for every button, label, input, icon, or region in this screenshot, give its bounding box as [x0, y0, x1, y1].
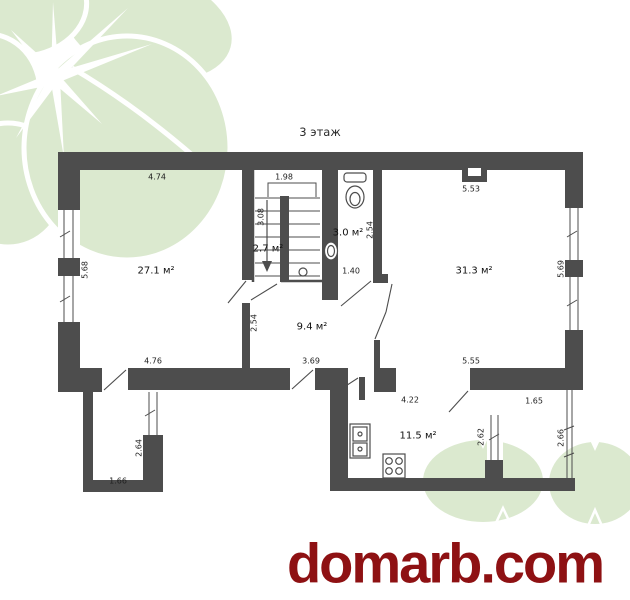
dim-3-08: 3.08 [257, 208, 266, 226]
dim-1-40: 1.40 [342, 267, 360, 276]
wall-wc-stub [373, 274, 388, 283]
dim-2-62: 2.62 [477, 428, 486, 446]
window-right-2 [565, 277, 583, 330]
dim-4-22: 4.22 [401, 396, 419, 405]
room-labels: 27.1 м² 2.7 м² 3.0 м² 31.3 м² 9.4 м² 11.… [138, 228, 493, 442]
stair-newel [299, 268, 307, 276]
kitchen-sink-icon [350, 424, 370, 458]
dim-2-54-wc: 2.54 [366, 221, 375, 239]
door-stairwell [251, 284, 277, 300]
door-living-room [228, 281, 246, 303]
dim-1-66: 1.66 [109, 477, 127, 486]
stove-icon [383, 454, 405, 478]
stair-divider [280, 196, 289, 282]
room-label-bathroom: 3.0 м² [333, 228, 364, 239]
door-bathroom [341, 281, 371, 306]
leaf-decoration-top-left [0, 0, 247, 260]
floorplan-canvas: 27.1 м² 2.7 м² 3.0 м² 31.3 м² 9.4 м² 11.… [0, 0, 630, 600]
wall-kitchen-door-stub [359, 377, 365, 400]
wall-balcony-left [83, 392, 93, 492]
dim-1-65: 1.65 [525, 397, 543, 406]
window-balcony-left [143, 392, 163, 435]
door-hall-bottom [292, 370, 313, 389]
stair-arrow-head [262, 261, 272, 272]
dim-1-98: 1.98 [275, 173, 293, 182]
wall-kitchen-left [330, 368, 348, 480]
window-left-2 [58, 276, 80, 322]
wall-right-low [565, 330, 583, 390]
dim-3-69: 3.69 [302, 357, 320, 366]
room-label-living: 27.1 м² [138, 266, 175, 277]
room-label-stairs: 2.7 м² [253, 244, 284, 255]
dim-2-54-hall: 2.54 [250, 314, 259, 332]
door-big-room-a [386, 284, 392, 312]
toilet-icon [344, 173, 366, 208]
wall-bottom-main [330, 478, 575, 491]
room-label-kitchen: 11.5 м² [400, 431, 437, 442]
stair-landing-rail [268, 183, 316, 197]
room-label-bigroom: 31.3 м² [456, 266, 493, 277]
watermark-logo: domarb.com [287, 532, 603, 595]
floor-title: 3 этаж [299, 125, 340, 139]
dim-5-68: 5.68 [81, 261, 90, 279]
wall-hall-left [242, 303, 250, 368]
window-right-1 [565, 208, 583, 260]
wall-right-top [565, 152, 583, 208]
wall-kitchen-window-block [485, 460, 503, 480]
wall-left-pier [58, 258, 80, 276]
room-label-hallway: 9.4 м² [297, 322, 328, 333]
wall-balcony-right [143, 435, 163, 492]
wall-room1-bottom [128, 368, 290, 390]
wall-hall-right-low [374, 340, 380, 368]
wall-corner-block [374, 368, 396, 392]
dim-2-66: 2.66 [557, 429, 566, 447]
wall-left-top [58, 152, 80, 210]
wall-top [58, 152, 583, 170]
vent-notch-inner [468, 168, 481, 176]
floorplan-page: 27.1 м² 2.7 м² 3.0 м² 31.3 м² 9.4 м² 11.… [0, 0, 630, 600]
door-big-room-b [375, 312, 386, 339]
door-kitchen-bigroom [449, 391, 468, 412]
window-kitchen [487, 415, 503, 460]
washbasin-icon [325, 242, 338, 260]
wall-stair-left [242, 170, 252, 280]
dim-4-76: 4.76 [144, 357, 162, 366]
dim-5-55: 5.55 [462, 357, 480, 366]
dim-4-74: 4.74 [148, 173, 166, 182]
dim-5-69: 5.69 [557, 260, 566, 278]
wall-bottom-left-corner [58, 368, 102, 392]
dim-5-53: 5.53 [462, 185, 480, 194]
door-balcony-left [104, 370, 126, 390]
wall-right-pier [565, 260, 583, 277]
dim-2-64: 2.64 [135, 439, 144, 457]
window-left-1 [58, 210, 80, 258]
